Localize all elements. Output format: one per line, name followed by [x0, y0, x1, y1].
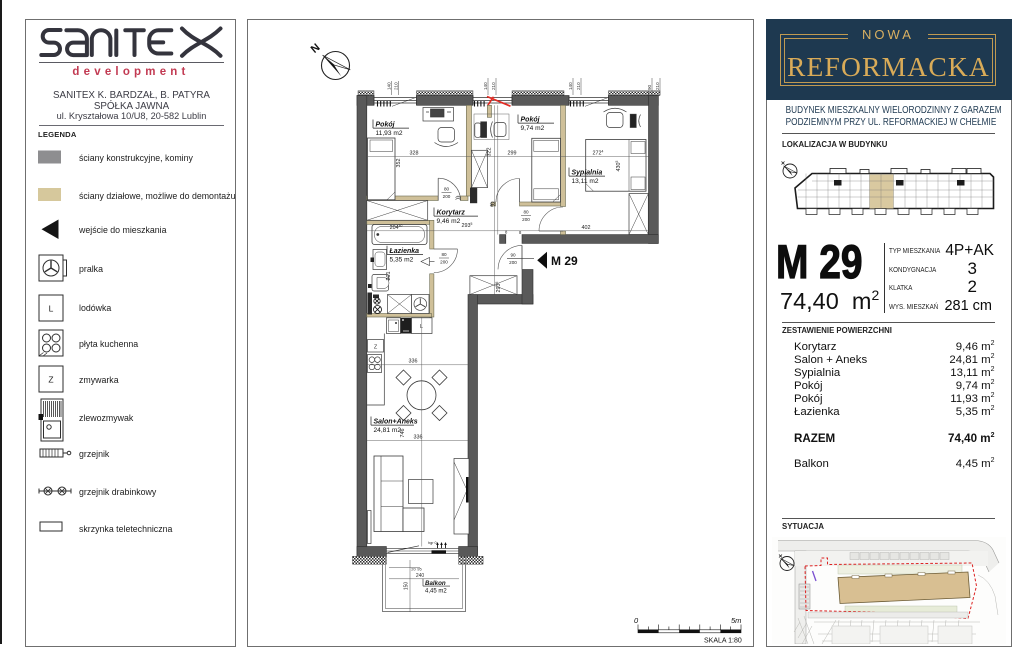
- svg-text:336: 336: [409, 359, 418, 365]
- svg-text:N: N: [309, 41, 323, 55]
- svg-text:4,45 m2: 4,45 m2: [425, 589, 447, 595]
- svg-text:hgr 0: hgr 0: [428, 541, 437, 545]
- svg-text:Z: Z: [48, 375, 53, 385]
- svg-text:322: 322: [487, 148, 493, 157]
- svg-text:L: L: [49, 304, 54, 314]
- svg-text:210: 210: [576, 82, 581, 90]
- svg-text:Pokój: Pokój: [376, 122, 396, 129]
- svg-text:140: 140: [568, 82, 573, 90]
- svg-text:200: 200: [509, 260, 517, 265]
- svg-text:Pokój: Pokój: [521, 117, 541, 124]
- svg-text:9,74 m2: 9,74 m2: [521, 125, 545, 132]
- svg-text:240: 240: [416, 573, 425, 579]
- svg-text:336: 336: [414, 434, 423, 440]
- svg-text:80: 80: [444, 187, 450, 192]
- svg-text:746: 746: [400, 429, 406, 438]
- svg-text:140: 140: [387, 82, 392, 90]
- svg-text:352: 352: [396, 159, 402, 168]
- svg-text:140: 140: [483, 82, 488, 90]
- svg-text:210: 210: [491, 82, 496, 90]
- svg-text:328: 328: [410, 151, 419, 157]
- svg-text:9,46 m2: 9,46 m2: [437, 218, 461, 225]
- svg-text:402: 402: [582, 225, 591, 231]
- svg-text:13,11 m2: 13,11 m2: [572, 178, 599, 185]
- svg-text:5,35 m2: 5,35 m2: [390, 256, 414, 263]
- svg-text:20: 20: [411, 567, 416, 572]
- svg-text:Balkon: Balkon: [425, 580, 446, 587]
- svg-text:Sypialnia: Sypialnia: [572, 170, 603, 177]
- svg-text:210: 210: [655, 82, 660, 90]
- svg-text:299: 299: [508, 151, 517, 157]
- svg-text:24,81 m2: 24,81 m2: [374, 427, 402, 434]
- svg-text:210: 210: [394, 82, 399, 90]
- svg-text:Korytarz: Korytarz: [437, 210, 466, 217]
- svg-text:Łazienka: Łazienka: [389, 248, 420, 255]
- svg-text:11,93 m2: 11,93 m2: [376, 130, 403, 137]
- svg-text:8: 8: [505, 230, 508, 235]
- svg-text:150: 150: [404, 582, 410, 591]
- svg-text:95: 95: [417, 567, 422, 572]
- svg-text:SKALA 1:80: SKALA 1:80: [704, 638, 742, 644]
- svg-text:90: 90: [647, 84, 652, 90]
- svg-text:200: 200: [440, 260, 448, 265]
- svg-text:Salon+Aneks: Salon+Aneks: [374, 419, 418, 426]
- svg-text:200: 200: [522, 217, 530, 222]
- svg-text:0: 0: [634, 616, 639, 625]
- svg-text:M 29: M 29: [551, 254, 578, 268]
- svg-text:200: 200: [443, 194, 451, 199]
- svg-text:L: L: [420, 324, 423, 330]
- svg-text:201: 201: [386, 272, 392, 281]
- svg-text:80: 80: [523, 210, 529, 215]
- svg-text:5m: 5m: [731, 616, 741, 625]
- svg-text:2935: 2935: [462, 222, 473, 229]
- svg-text:80: 80: [441, 252, 447, 257]
- svg-text:90: 90: [510, 253, 516, 258]
